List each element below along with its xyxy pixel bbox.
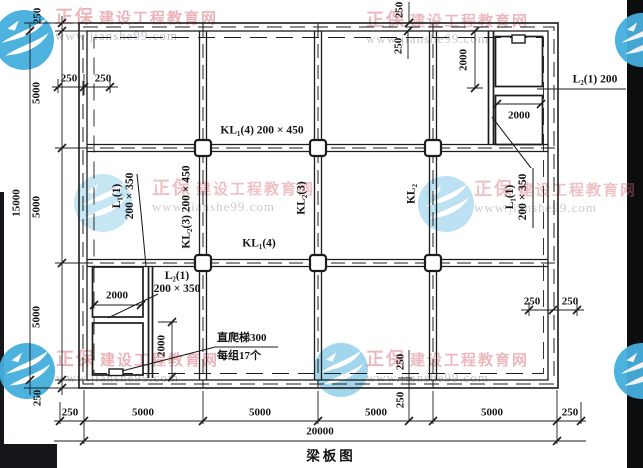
dim-wall-250-tl-a: 250 bbox=[61, 73, 78, 86]
dim-bottom-5000-3: 5000 bbox=[365, 407, 387, 420]
dim-bottom-250-right: 250 bbox=[562, 407, 579, 420]
dim-2000-shaft-horizontal: 2000 bbox=[508, 110, 530, 123]
dim-2000-room-b: 2000 bbox=[156, 335, 169, 357]
dim-left-5000-2: 5000 bbox=[31, 196, 44, 218]
drawing-title: 梁板图 bbox=[306, 450, 356, 463]
dim-left-250-top: 250 bbox=[32, 8, 45, 25]
interior-beams bbox=[79, 23, 558, 388]
dim-bottom-250-left: 250 bbox=[62, 407, 79, 420]
label-beam-l1-left: L₁(1) 200 × 350 bbox=[111, 173, 137, 220]
label-beam-l2-mid: L₂(1) 200 × 350 bbox=[154, 270, 201, 296]
label-beam-l2-right: L₂(1) 200 bbox=[573, 74, 618, 87]
dim-wall-250-br-a: 250 bbox=[524, 296, 541, 309]
dim-bottom-5000-1: 5000 bbox=[132, 407, 154, 420]
ladder-symbol bbox=[109, 369, 123, 376]
dim-wall-250-tl-b: 250 bbox=[95, 73, 112, 86]
dim-left-5000-1: 5000 bbox=[31, 82, 44, 104]
label-beam-kl1-top: KL₁(4) 200 × 450 bbox=[220, 125, 303, 138]
dim-bottom-mid-250-lower: 250 bbox=[395, 392, 408, 409]
note-ladder: 直爬梯300 每组17个 bbox=[217, 330, 267, 365]
dim-top-250-outer: 250 bbox=[394, 2, 407, 19]
dim-bottom-5000-2: 5000 bbox=[249, 407, 271, 420]
dimension-lines bbox=[24, 2, 586, 444]
shaft-door-notch bbox=[512, 35, 525, 43]
label-beam-l1-right: L₁(1) 200 × 350 bbox=[504, 174, 530, 221]
beam-plan-drawing bbox=[0, 0, 643, 468]
dim-wall-250-br-b: 250 bbox=[562, 296, 579, 309]
dim-2000-room-a: 2000 bbox=[106, 290, 128, 303]
dim-left-5000-3: 5000 bbox=[31, 306, 44, 328]
beam-slab-plan-screenshot: 正保建设工程教育网www.jianshe99.com正保建设工程教育网www.j… bbox=[0, 0, 643, 468]
label-beam-kl1-bottom: KL₁(4) bbox=[242, 238, 275, 251]
dim-top-250-inner: 250 bbox=[393, 38, 406, 55]
dim-left-15000: 15000 bbox=[11, 189, 24, 217]
dim-2000-shaft-vertical: 2000 bbox=[458, 49, 471, 71]
dim-left-250-bottom: 250 bbox=[32, 390, 45, 407]
dim-bottom-mid-250-upper: 250 bbox=[395, 354, 408, 371]
dim-bottom-20000: 20000 bbox=[306, 426, 334, 439]
label-beam-kl2-mid: KL₂(3) bbox=[296, 181, 309, 214]
label-beam-kl2-right: KL₂ bbox=[406, 184, 419, 204]
label-beam-kl2-left: KL₂(3) 200 × 450 bbox=[181, 165, 194, 248]
dim-bottom-5000-4: 5000 bbox=[481, 407, 503, 420]
